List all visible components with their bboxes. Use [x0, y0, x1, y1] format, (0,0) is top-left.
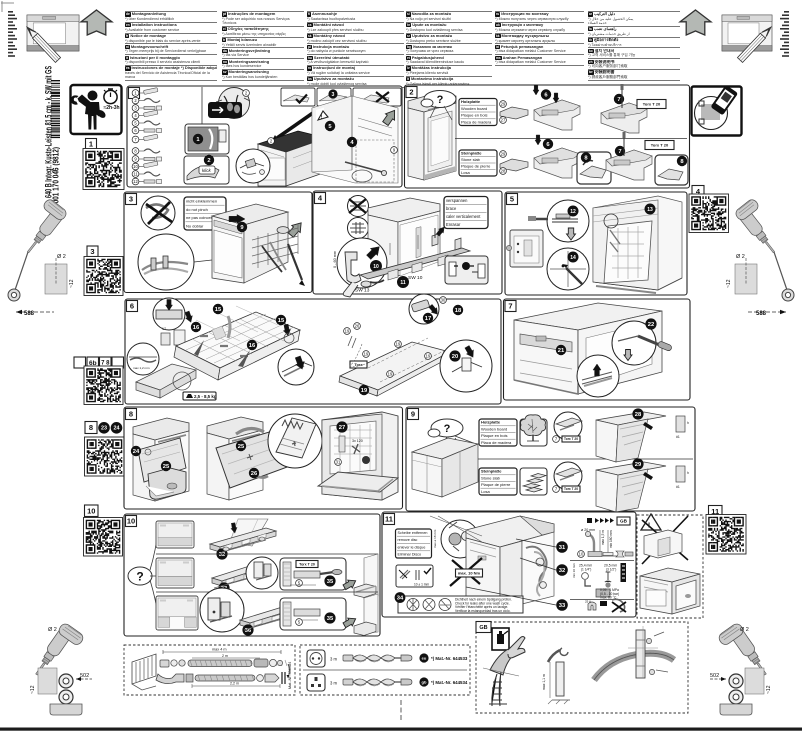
svg-text:35: 35 [327, 616, 334, 622]
svg-text:1: 1 [89, 139, 93, 148]
svg-text:Steinplatte: Steinplatte [481, 469, 502, 474]
svg-text:3 m: 3 m [330, 657, 337, 662]
svg-text:12: 12 [570, 209, 576, 215]
svg-text:2,2 m: 2,2 m [230, 682, 239, 686]
svg-text:9001 170 046 (9812): 9001 170 046 (9812) [52, 147, 61, 207]
svg-text:ne pas coincer: ne pas coincer [186, 215, 213, 220]
svg-text:32: 32 [559, 568, 565, 574]
svg-text:nicht einklemmen: nicht einklemmen [186, 199, 217, 204]
svg-text:Ø 2: Ø 2 [740, 627, 749, 633]
svg-text:10 ± 1 mm: 10 ± 1 mm [414, 583, 429, 587]
svg-text:31: 31 [336, 460, 341, 465]
svg-text:max ø 18 mm: max ø 18 mm [433, 529, 437, 548]
svg-text:Placa de madera: Placa de madera [461, 119, 492, 124]
svg-text:7: 7 [618, 149, 621, 155]
svg-text:(1 1/4"): (1 1/4") [581, 568, 591, 572]
svg-text:17: 17 [162, 327, 166, 331]
svg-text:11: 11 [400, 280, 406, 286]
svg-text:~12: ~12 [30, 685, 36, 694]
svg-text:min 180 mm: min 180 mm [609, 530, 613, 548]
svg-text:16: 16 [193, 325, 200, 331]
svg-text:Torx T 20: Torx T 20 [564, 487, 578, 491]
svg-text:max 1,2 mm: max 1,2 mm [133, 366, 150, 370]
svg-text:588: 588 [756, 311, 767, 317]
svg-text:2: 2 [207, 158, 210, 164]
svg-text:Torx T 20: Torx T 20 [299, 562, 315, 566]
svg-text:15: 15 [215, 307, 222, 313]
svg-text:Ø 2: Ø 2 [736, 254, 745, 260]
svg-text:Plaque en bois: Plaque en bois [481, 433, 507, 438]
svg-text:2,5 - 8,5 kg: 2,5 - 8,5 kg [194, 394, 217, 399]
svg-text:max 1,5 m: max 1,5 m [601, 530, 605, 545]
svg-text:?: ? [444, 423, 451, 435]
svg-text:22: 22 [648, 322, 654, 328]
svg-text:Plaque de pierre: Plaque de pierre [461, 163, 491, 168]
svg-text:No doblar: No doblar [186, 223, 204, 228]
svg-text:19: 19 [364, 352, 369, 357]
svg-text:Plaque en bois: Plaque en bois [461, 113, 487, 118]
svg-text:27: 27 [501, 118, 506, 123]
svg-text:Stone slab: Stone slab [481, 475, 501, 480]
svg-text:Ø 2: Ø 2 [48, 627, 57, 633]
svg-text:h: h [687, 421, 689, 425]
svg-text:(3 1/2"): (3 1/2") [606, 568, 616, 572]
svg-text:26: 26 [355, 324, 360, 329]
svg-text:13: 13 [647, 207, 653, 213]
svg-text:10: 10 [133, 164, 138, 169]
svg-text:12: 12 [133, 179, 138, 184]
svg-text:h: h [687, 471, 689, 475]
svg-text:Torx: Torx [354, 362, 363, 367]
svg-text:20: 20 [452, 354, 458, 360]
svg-text:11: 11 [385, 515, 393, 524]
svg-text:2: 2 [409, 88, 413, 97]
svg-text:caler verticalement: caler verticalement [446, 214, 481, 219]
svg-text:verspannen: verspannen [446, 198, 468, 203]
svg-text:588: 588 [24, 311, 35, 317]
svg-text:2 m: 2 m [222, 654, 228, 658]
svg-text:?: ? [136, 570, 143, 584]
svg-text:Stone slab: Stone slab [461, 157, 481, 162]
svg-text:10: 10 [373, 264, 379, 270]
svg-text:#1: #1 [676, 435, 680, 439]
svg-text:eu: eu [422, 655, 427, 660]
svg-text:19: 19 [396, 342, 401, 347]
svg-text:Enrasar: Enrasar [446, 222, 461, 227]
svg-text:enlever le disque: enlever le disque [398, 545, 426, 549]
svg-text:8: 8 [89, 423, 93, 432]
svg-text:≈2h-3h: ≈2h-3h [104, 105, 120, 111]
svg-text:SW 10: SW 10 [408, 275, 423, 281]
svg-text:?: ? [437, 94, 444, 106]
svg-text:3 m: 3 m [330, 681, 337, 686]
svg-text:Holzplatte: Holzplatte [461, 99, 481, 104]
svg-text:Torx T 20: Torx T 20 [651, 142, 669, 147]
svg-text:25: 25 [163, 464, 170, 470]
svg-text:Losa: Losa [461, 170, 470, 175]
svg-text:15: 15 [278, 318, 285, 324]
svg-text:Torx T 20: Torx T 20 [564, 437, 578, 441]
svg-text:29: 29 [501, 152, 506, 157]
svg-text:14: 14 [570, 255, 576, 261]
svg-text:9: 9 [411, 410, 415, 419]
svg-text:26: 26 [251, 471, 258, 477]
svg-text:Losa: Losa [481, 489, 490, 494]
svg-text:25 A: 25 A [585, 600, 591, 604]
svg-text:28: 28 [501, 169, 506, 174]
svg-text:Holzplatte: Holzplatte [481, 420, 501, 425]
svg-text:32: 32 [219, 552, 225, 558]
svg-text:34: 34 [397, 596, 404, 602]
svg-text:klick: klick [202, 168, 211, 173]
svg-text:33: 33 [559, 603, 566, 609]
svg-text:502: 502 [80, 673, 89, 679]
svg-text:Wooden board: Wooden board [481, 426, 507, 431]
svg-text:min 10 mm: min 10 mm [572, 563, 576, 578]
svg-text:5: 5 [510, 195, 514, 204]
svg-text:502: 502 [710, 673, 719, 679]
svg-text:3: 3 [90, 247, 94, 256]
svg-text:17: 17 [425, 316, 431, 322]
svg-text:~12: ~12 [766, 685, 772, 694]
svg-text:24: 24 [114, 426, 120, 432]
svg-text:Ø 2: Ø 2 [57, 254, 66, 260]
svg-text:19: 19 [388, 372, 393, 377]
svg-text:Placa de madera: Placa de madera [481, 440, 512, 445]
svg-text:7: 7 [508, 302, 512, 311]
svg-text:SW 13: SW 13 [355, 288, 370, 294]
svg-text:3x 120: 3x 120 [352, 439, 363, 443]
svg-text:max 1,1 m: max 1,1 m [542, 674, 546, 690]
svg-text:Verificar la estanqueidad tras: Verificar la estanqueidad tras un ciclo. [455, 609, 511, 613]
svg-text:11: 11 [133, 172, 138, 177]
svg-text:max. 10 Nm: max. 10 Nm [458, 570, 481, 575]
svg-text:19: 19 [361, 388, 368, 394]
svg-text:Eliminar Disco: Eliminar Disco [398, 553, 422, 557]
svg-text:18: 18 [455, 308, 462, 314]
svg-text:28: 28 [635, 412, 642, 418]
svg-text:3: 3 [332, 92, 335, 98]
svg-text:31: 31 [559, 545, 566, 551]
svg-text:8: 8 [129, 410, 133, 419]
svg-text:Scheibe entfernen: Scheibe entfernen [398, 531, 428, 535]
svg-text:10: 10 [87, 506, 95, 515]
svg-text:#1: #1 [676, 485, 680, 489]
svg-text:!: ! [321, 115, 323, 121]
svg-text:gb: gb [422, 679, 427, 684]
svg-text:remove disc: remove disc [398, 538, 418, 542]
svg-text:35: 35 [327, 579, 334, 585]
svg-text:~12: ~12 [726, 279, 732, 288]
svg-text:29: 29 [501, 102, 506, 107]
svg-text:10: 10 [579, 552, 584, 557]
svg-text:Torx T 20: Torx T 20 [643, 101, 661, 106]
svg-text:30: 30 [441, 298, 446, 303]
svg-text:27: 27 [339, 425, 345, 431]
svg-text:24: 24 [133, 449, 140, 455]
svg-text:0 - 60 mm: 0 - 60 mm [333, 251, 337, 268]
svg-text:29: 29 [635, 462, 642, 468]
svg-text:23: 23 [101, 426, 107, 432]
svg-text:19: 19 [426, 354, 431, 359]
svg-text:Wooden board: Wooden board [461, 106, 487, 111]
svg-text:10: 10 [127, 517, 135, 526]
svg-text:16: 16 [249, 343, 256, 349]
svg-text:max 4 m: max 4 m [212, 648, 227, 652]
svg-text:7: 7 [617, 97, 620, 103]
svg-text:do not pinch: do not pinch [186, 207, 208, 212]
svg-text:21: 21 [558, 348, 565, 354]
svg-text:6: 6 [130, 302, 134, 311]
svg-text:25: 25 [238, 444, 245, 450]
svg-text:*) Mat.-Nr. 644533: *) Mat.-Nr. 644533 [431, 656, 468, 661]
svg-text:~12: ~12 [69, 279, 75, 288]
svg-text:GB: GB [620, 519, 628, 524]
svg-text:3: 3 [129, 195, 133, 204]
svg-text:brace: brace [446, 206, 457, 211]
svg-text:Steinplatte: Steinplatte [461, 150, 482, 155]
svg-text:Plaque de pierre: Plaque de pierre [481, 482, 511, 487]
svg-text:GB: GB [479, 625, 487, 631]
svg-text:*) Mat.-Nr. 644534: *) Mat.-Nr. 644534 [431, 680, 468, 685]
svg-text:19: 19 [345, 329, 350, 334]
